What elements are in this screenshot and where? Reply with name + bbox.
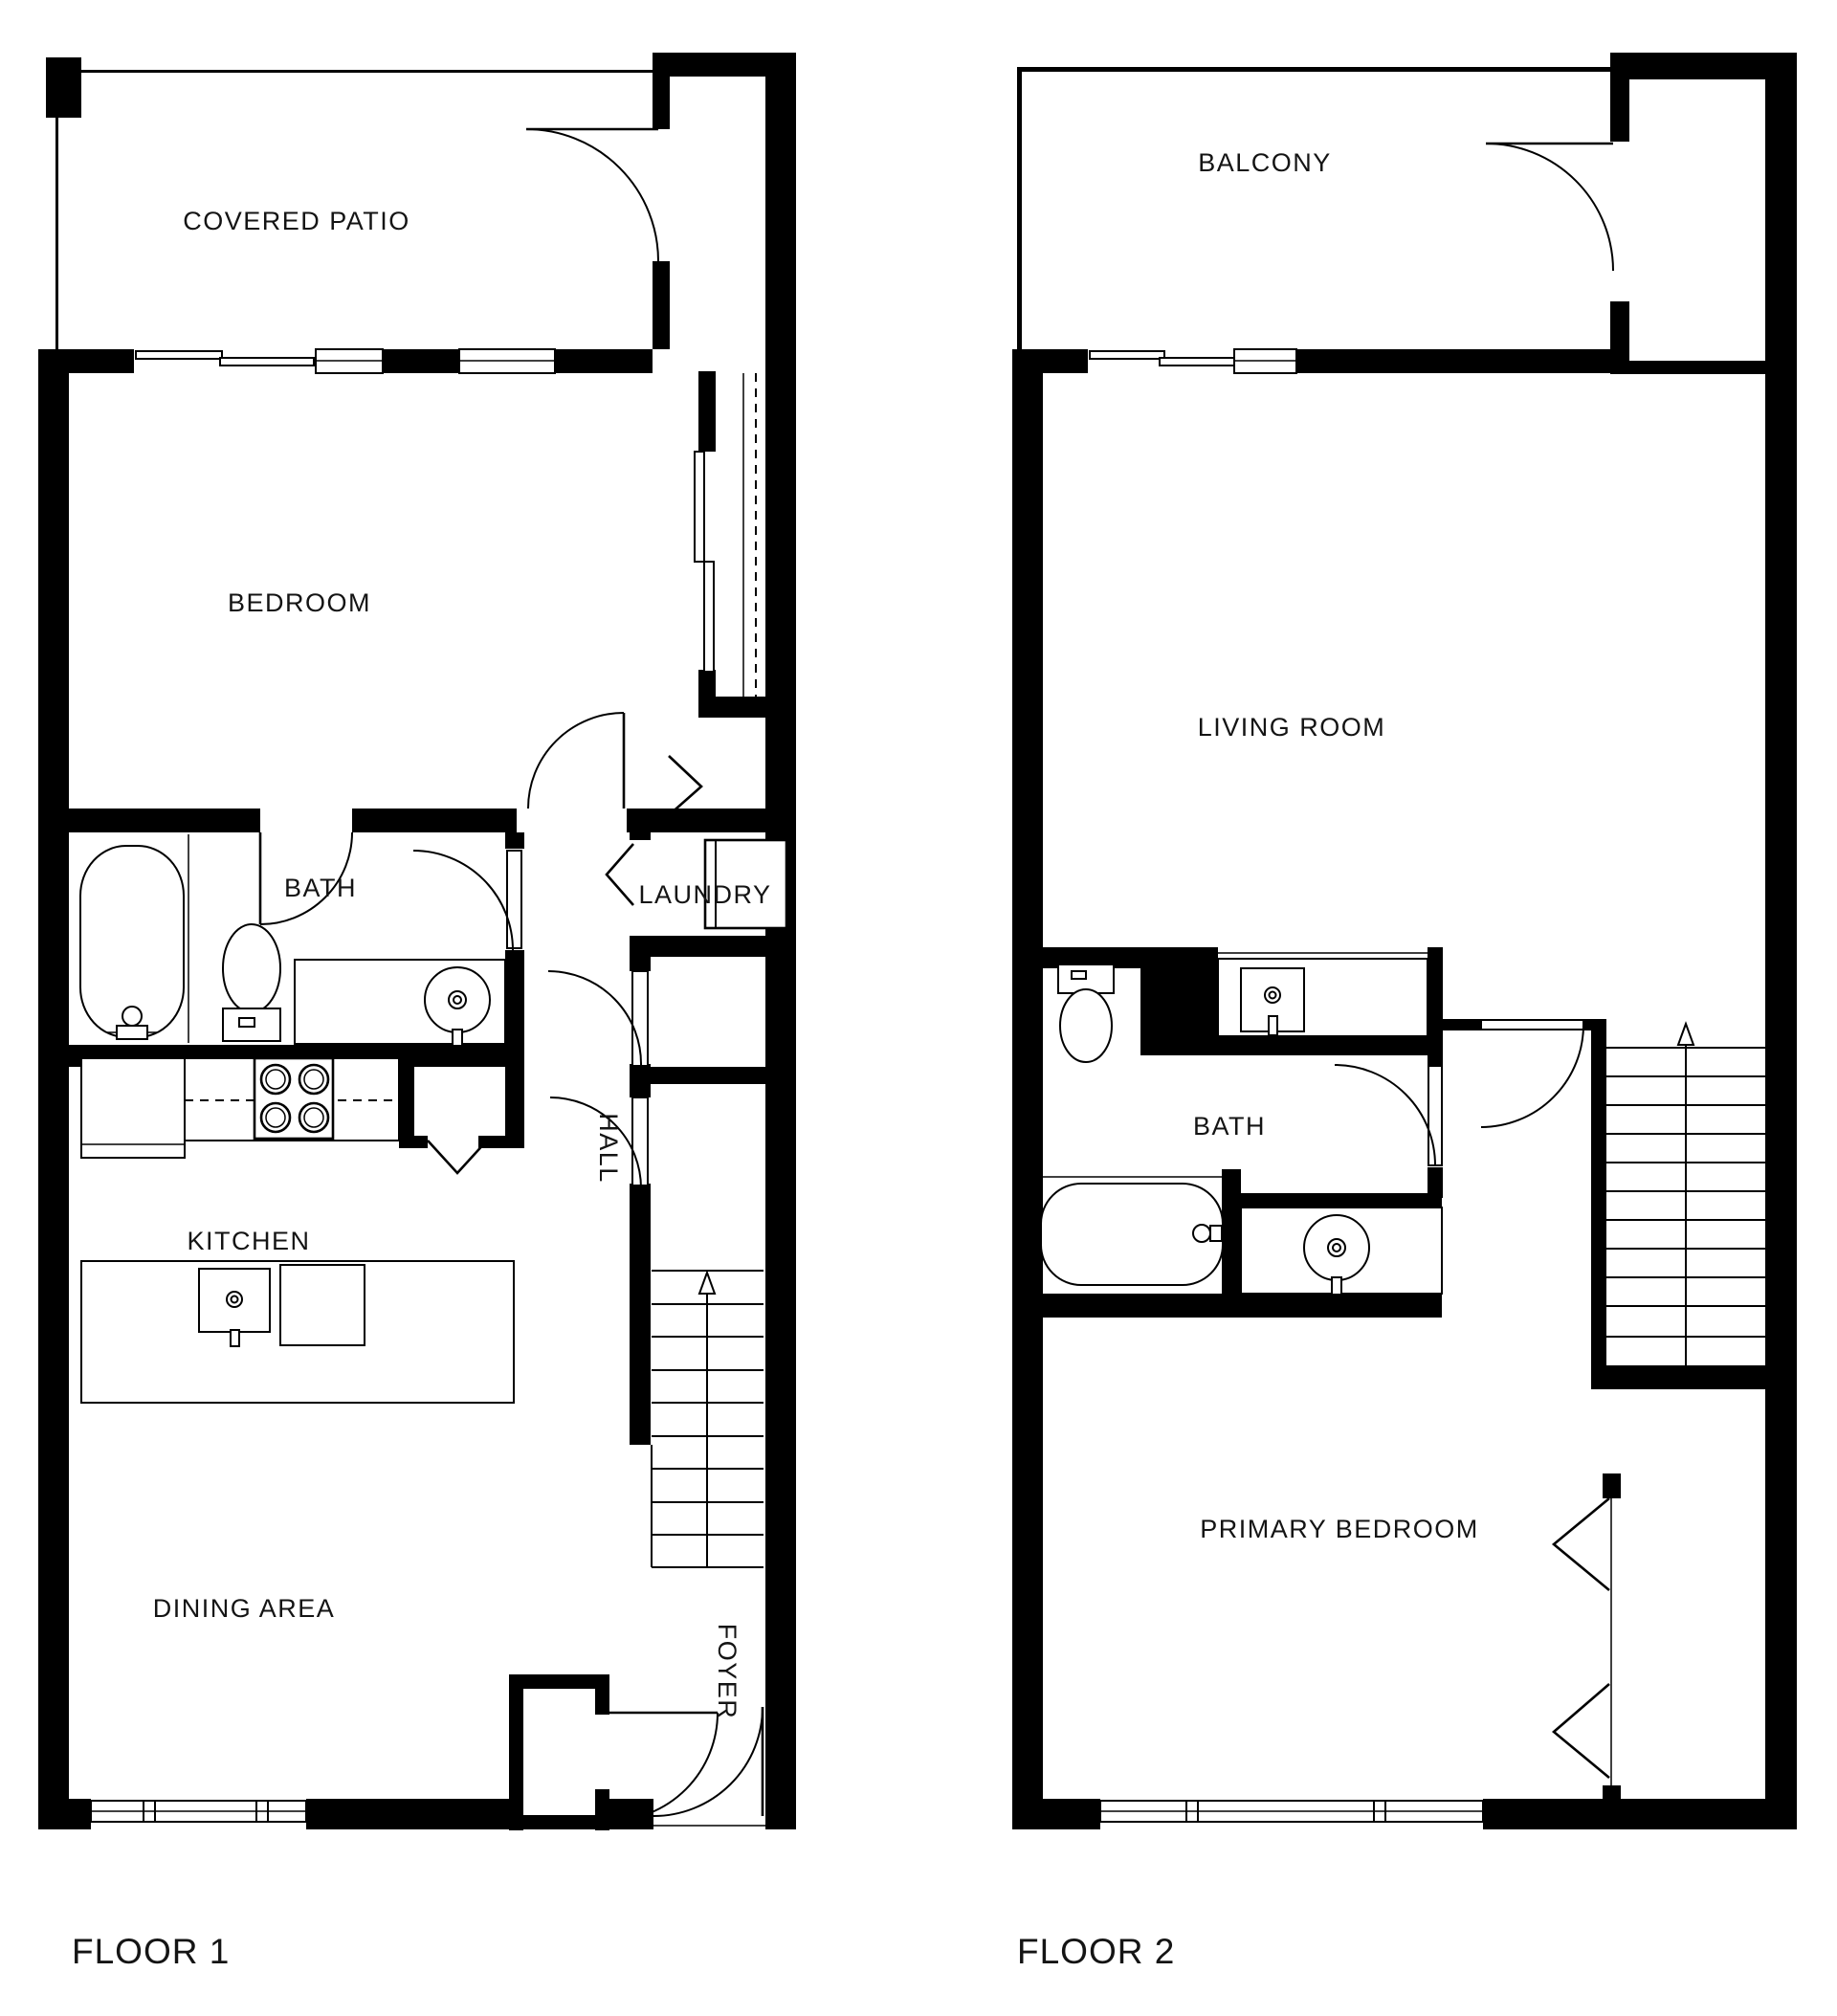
dining-window — [91, 1801, 306, 1822]
closet-slider-panel — [704, 562, 714, 672]
bath2-door — [1335, 1065, 1442, 1165]
top-window-2 — [459, 349, 555, 373]
primary-door-swing — [1481, 1025, 1583, 1127]
dishwasher — [280, 1265, 365, 1345]
floor2-outer-walls — [1012, 53, 1797, 1829]
bath2-vanity-top — [1218, 959, 1428, 1036]
living-top-window — [1234, 349, 1296, 373]
room-label-hall: HALL — [594, 1113, 623, 1184]
floor1-plan: COVERED PATIO BEDROOM BATH LAUNDRY KITCH… — [38, 53, 796, 1971]
bath-hall-door-swing — [413, 851, 513, 950]
refrigerator — [81, 1058, 185, 1158]
room-label-covered-patio: COVERED PATIO — [183, 207, 410, 235]
room-label-balcony: BALCONY — [1198, 148, 1332, 177]
balcony-sliding-door — [1090, 351, 1236, 366]
closet-bifold-icon — [1554, 1498, 1609, 1590]
pantry-bifold-door-icon — [428, 1141, 487, 1173]
bedroom-closet-bifold-icon — [669, 756, 701, 815]
stove — [255, 1058, 333, 1139]
entry-door — [653, 1707, 765, 1826]
bathtub-floor2 — [1041, 1177, 1223, 1285]
floor2-label: FLOOR 2 — [1017, 1932, 1175, 1971]
plumbing-wall-block — [1140, 947, 1218, 1055]
primary-closet — [1554, 1473, 1621, 1801]
closet-bifold-icon — [1554, 1684, 1609, 1778]
room-label-primary-bedroom: PRIMARY BEDROOM — [1200, 1515, 1479, 1543]
primary-bedroom-door — [1481, 1020, 1583, 1127]
floor1-label: FLOOR 1 — [72, 1932, 230, 1971]
kitchen-island — [81, 1261, 514, 1403]
room-label-bath-1: BATH — [284, 874, 357, 902]
patio-sliding-door — [136, 351, 314, 366]
kitchen-counter — [81, 1058, 399, 1158]
room-label-living-room: LIVING ROOM — [1198, 713, 1386, 742]
room-label-kitchen: KITCHEN — [187, 1227, 310, 1255]
balcony-storage-closet — [1610, 79, 1765, 374]
toilet-floor1 — [223, 924, 280, 1041]
entry-door-swing — [653, 1707, 763, 1816]
top-window-1 — [316, 349, 383, 373]
floor2-plan: BALCONY LIVING ROOM BATH PRIMARY BEDROOM… — [1012, 53, 1797, 1971]
bedroom-bath-wall — [69, 809, 765, 832]
room-label-foyer: FOYER — [713, 1624, 741, 1720]
bath2-vanity-bottom — [1241, 1207, 1442, 1295]
bedroom-door-swing — [528, 713, 624, 809]
closet-slider-panel — [695, 452, 704, 562]
floor-plan-canvas: COVERED PATIO BEDROOM BATH LAUNDRY KITCH… — [0, 0, 1837, 2016]
stairs2-up-arrow-icon — [1678, 1024, 1693, 1045]
balcony-outline — [1017, 67, 1612, 375]
room-label-bedroom: BEDROOM — [228, 588, 371, 617]
primary-door-leaf — [1481, 1020, 1583, 1030]
bath2-door-leaf — [1428, 1066, 1442, 1165]
toilet-floor2 — [1058, 964, 1114, 1062]
room-label-bath-2: BATH — [1193, 1112, 1266, 1141]
covered-patio-outline — [46, 57, 653, 352]
storage-closet-door — [548, 971, 648, 1066]
bath-hall-door-leaf — [507, 851, 521, 948]
bathtub — [80, 846, 184, 1039]
patio-door-swing — [526, 129, 658, 261]
primary-window — [1100, 1801, 1483, 1822]
room-label-dining-area: DINING AREA — [153, 1594, 336, 1623]
bedroom-closet — [695, 371, 765, 718]
storage-door-swing — [548, 971, 641, 1066]
bath2-door-swing — [1335, 1065, 1435, 1165]
stairs-floor1 — [652, 1271, 764, 1567]
balcony-door-swing — [1486, 144, 1613, 271]
stairs-up-arrow-icon — [699, 1273, 715, 1294]
room-label-laundry: LAUNDRY — [638, 880, 771, 909]
stairs-floor2 — [1591, 1019, 1765, 1389]
floor-plan-drawing: COVERED PATIO BEDROOM BATH LAUNDRY KITCH… — [0, 0, 1837, 2016]
bath-vanity-floor1 — [295, 960, 505, 1047]
patio-post — [46, 57, 81, 118]
laundry-bifold-door-icon — [607, 844, 633, 905]
